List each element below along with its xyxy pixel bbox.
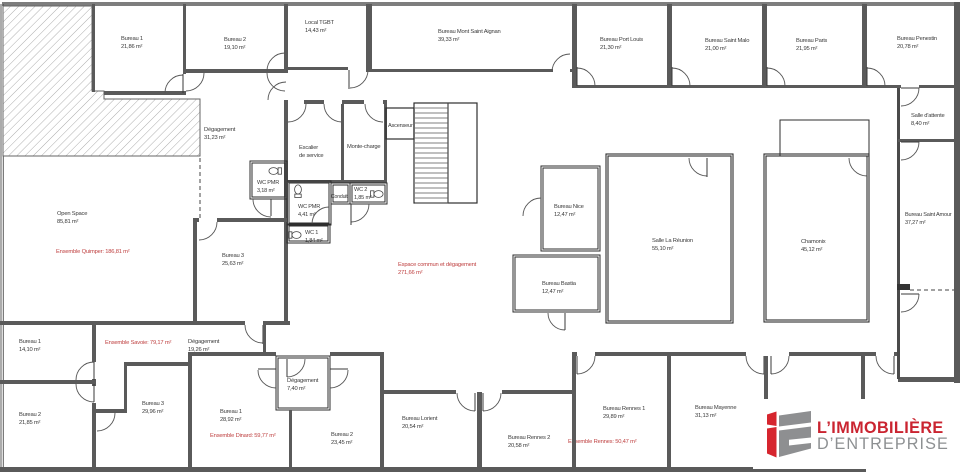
svg-text:Conduit: Conduit: [331, 194, 348, 200]
svg-text:Ensemble Savoie: 79,17 m²: Ensemble Savoie: 79,17 m²: [105, 340, 171, 346]
svg-text:Ascenseur: Ascenseur: [388, 123, 413, 129]
svg-text:Ensemble Dinard: 59,77 m²: Ensemble Dinard: 59,77 m²: [210, 433, 276, 439]
svg-text:Monte-charge: Monte-charge: [347, 144, 380, 150]
svg-text:D’ENTREPRISE: D’ENTREPRISE: [817, 435, 949, 453]
svg-text:Ensemble Rennes: 50,47 m²: Ensemble Rennes: 50,47 m²: [568, 439, 637, 445]
svg-text:Ensemble Quimper: 186,81 m²: Ensemble Quimper: 186,81 m²: [56, 249, 130, 255]
